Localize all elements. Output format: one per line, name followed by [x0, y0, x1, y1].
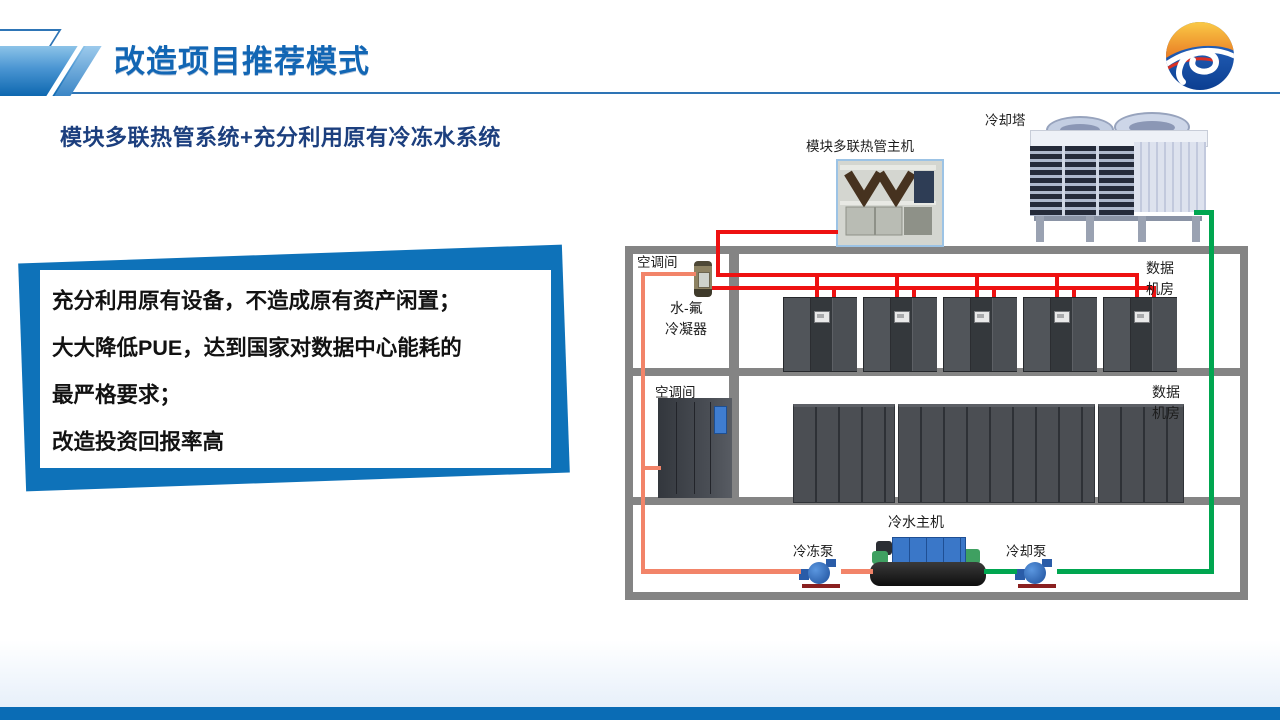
rack-display	[1054, 311, 1070, 323]
cooling-tower-image	[1030, 118, 1210, 244]
label-chilled-pump: 冷冻泵	[793, 540, 834, 560]
pipe-red	[716, 230, 838, 234]
crac-display	[714, 406, 727, 434]
pipe-green	[984, 569, 1017, 574]
wall-right	[1240, 246, 1248, 600]
pipe-red-drop	[832, 286, 836, 297]
highlight-box-text: 充分利用原有设备，不造成原有资产闲置； 大大降低PUE，达到国家对数据中心能耗的…	[52, 278, 547, 466]
label-data-room-floor2: 数据 机房	[1152, 382, 1180, 424]
presentation-slide: 改造项目推荐模式 模块多联热管系统+充分利用原有冷冻水系统 充分利用原有设备，不…	[0, 0, 1280, 720]
pipe-orange-branch	[641, 466, 661, 470]
crac-unit	[658, 398, 732, 498]
water-fluorine-condenser	[694, 261, 712, 297]
pipe-red-drop	[815, 273, 819, 297]
label-ac-room-floor1: 空调间	[637, 251, 678, 271]
cooling-water-pump	[1015, 560, 1059, 588]
chilled-water-pump	[799, 560, 843, 588]
page-title: 改造项目推荐模式	[114, 36, 370, 81]
server-rack	[783, 297, 857, 372]
label-heat-pipe-host: 模块多联热管主机	[806, 135, 914, 155]
section-subtitle: 模块多联热管系统+充分利用原有冷冻水系统	[60, 120, 501, 152]
server-rack	[943, 297, 1017, 372]
rack-display	[974, 311, 990, 323]
highlight-line: 充分利用原有设备，不造成原有资产闲置；	[52, 278, 547, 325]
pipe-red-drop	[895, 273, 899, 297]
server-rack	[863, 297, 937, 372]
company-logo-icon	[1163, 18, 1237, 92]
pipe-red-supply	[716, 273, 1139, 277]
rack-display	[1134, 311, 1150, 323]
label-data-room-floor1: 数据 机房	[1146, 258, 1174, 300]
label-cooling-pump: 冷却泵	[1006, 540, 1047, 560]
server-rack	[1103, 297, 1177, 372]
server-rack	[1023, 297, 1097, 372]
rack-display	[814, 311, 830, 323]
highlight-line: 大大降低PUE，达到国家对数据中心能耗的	[52, 325, 547, 372]
label-chiller: 冷水主机	[888, 512, 944, 532]
pipe-red-drop	[975, 273, 979, 297]
pipe-orange	[641, 272, 645, 573]
chiller-barrel	[870, 562, 986, 586]
label-condenser: 水-氟 冷凝器	[670, 298, 707, 340]
server-rack-row	[793, 404, 895, 503]
wall-left	[625, 246, 633, 600]
highlight-line: 改造投资回报率高	[52, 419, 547, 466]
footer-bar	[0, 707, 1280, 720]
label-cooling-tower: 冷却塔	[985, 109, 1026, 129]
highlight-line: 最严格要求；	[52, 372, 547, 419]
pipe-green	[1057, 569, 1212, 574]
pipe-red-return	[712, 286, 1156, 290]
pipe-orange	[641, 569, 801, 574]
pipe-red-drop	[1135, 273, 1139, 297]
rack-display	[894, 311, 910, 323]
pipe-green	[1209, 210, 1214, 574]
pipe-red	[716, 230, 720, 277]
pipe-orange	[841, 569, 873, 574]
heat-pipe-host-image	[836, 159, 944, 247]
footer-fade	[0, 640, 1280, 707]
pipe-red-drop	[912, 286, 916, 297]
pipe-red-drop	[992, 286, 996, 297]
pipe-red-drop	[1072, 286, 1076, 297]
header-underline	[0, 92, 1280, 94]
pipe-orange	[641, 272, 696, 276]
pipe-red-drop	[1055, 273, 1059, 297]
wall-bottom	[625, 592, 1248, 600]
label-ac-room-floor2: 空调间	[655, 381, 696, 401]
server-rack-row	[898, 404, 1095, 503]
